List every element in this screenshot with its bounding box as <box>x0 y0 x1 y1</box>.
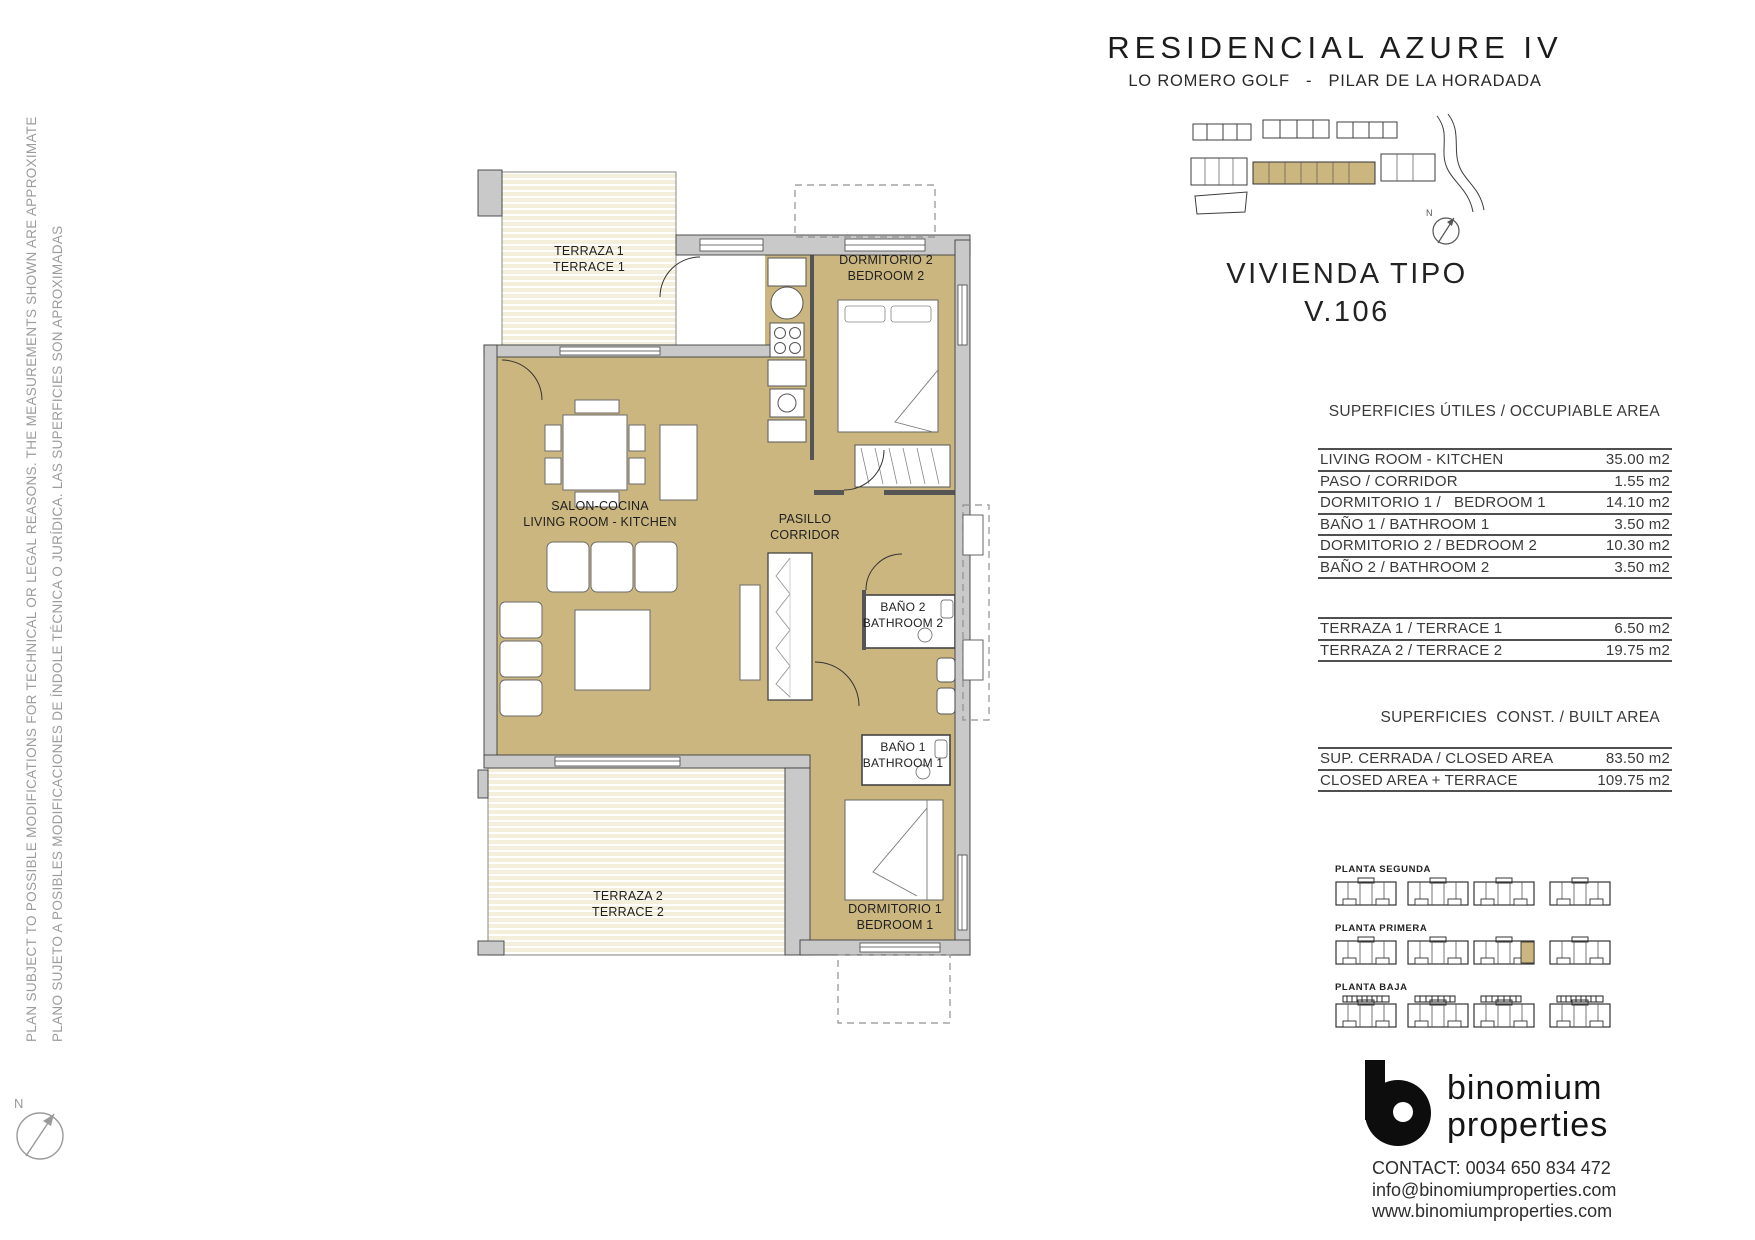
contact-email[interactable]: info@binomiumproperties.com <box>1372 1180 1616 1202</box>
floor-diagram-primera <box>1335 936 1615 970</box>
project-subtitle: LO ROMERO GOLF - PILAR DE LA HORADADA <box>1107 72 1562 91</box>
pasillo-en: CORRIDOR <box>745 528 865 544</box>
site-compass-icon: N <box>1424 206 1466 250</box>
built-area-table: SUP. CERRADA / CLOSED AREA83.50 m2 CLOSE… <box>1318 747 1672 792</box>
bano2-en: BATHROOM 2 <box>835 616 971 632</box>
table-row: BAÑO 1 / BATHROOM 13.50 m2 <box>1318 515 1672 537</box>
dormitorio2-en: BEDROOM 2 <box>806 269 966 285</box>
room-label-bano1: BAÑO 1 BATHROOM 1 <box>835 740 971 771</box>
row-label: PASO / CORRIDOR <box>1320 473 1458 490</box>
terraza1-es: TERRAZA 1 <box>509 244 669 260</box>
contact-website[interactable]: www.binomiumproperties.com <box>1372 1201 1616 1223</box>
table-row: PASO / CORRIDOR1.55 m2 <box>1318 472 1672 494</box>
brand-name: binomium properties <box>1447 1070 1608 1144</box>
built-area-header: SUPERFICIES CONST. / BUILT AREA <box>1240 709 1660 727</box>
compass-n-label: N <box>14 1096 23 1111</box>
pasillo-es: PASILLO <box>745 512 865 528</box>
row-value: 10.30 m2 <box>1606 537 1670 554</box>
row-label: TERRAZA 2 / TERRACE 2 <box>1320 642 1502 659</box>
brand-name-line1: binomium <box>1447 1070 1608 1107</box>
table-row: DORMITORIO 1 / BEDROOM 114.10 m2 <box>1318 493 1672 515</box>
room-label-terraza1: TERRAZA 1 TERRACE 1 <box>509 244 669 275</box>
occupiable-area-table: LIVING ROOM - KITCHEN35.00 m2 PASO / COR… <box>1318 448 1672 579</box>
site-plan-drawing <box>1185 112 1485 220</box>
row-label: LIVING ROOM - KITCHEN <box>1320 451 1503 468</box>
room-label-dormitorio2: DORMITORIO 2 BEDROOM 2 <box>806 253 966 284</box>
floor-diagram-segunda <box>1335 877 1615 911</box>
room-label-terraza2: TERRAZA 2 TERRACE 2 <box>548 889 708 920</box>
row-value: 3.50 m2 <box>1614 516 1670 533</box>
row-value: 83.50 m2 <box>1606 750 1670 767</box>
project-title-block: RESIDENCIAL AZURE IV LO ROMERO GOLF - PI… <box>1107 30 1562 91</box>
row-value: 3.50 m2 <box>1614 559 1670 576</box>
contact-block: CONTACT: 0034 650 834 472 info@binomiump… <box>1372 1158 1616 1223</box>
disclaimer-spanish: PLANO SUJETO A POSIBLES MODIFICACIONES D… <box>50 226 65 1042</box>
floor-label-baja: PLANTA BAJA <box>1335 982 1625 993</box>
terraza1-en: TERRACE 1 <box>509 260 669 276</box>
row-label: DORMITORIO 1 / BEDROOM 1 <box>1320 494 1546 511</box>
room-label-pasillo: PASILLO CORRIDOR <box>745 512 865 543</box>
unit-number: V.106 <box>1226 293 1467 331</box>
binomium-b-icon <box>1365 1060 1435 1146</box>
bano1-en: BATHROOM 1 <box>835 756 971 772</box>
brand-logo: binomium properties <box>1365 1060 1608 1146</box>
bano2-es: BAÑO 2 <box>835 600 971 616</box>
dormitorio2-es: DORMITORIO 2 <box>806 253 966 269</box>
row-label: BAÑO 1 / BATHROOM 1 <box>1320 516 1489 533</box>
row-value: 6.50 m2 <box>1614 620 1670 637</box>
terraza2-es: TERRAZA 2 <box>548 889 708 905</box>
row-label: BAÑO 2 / BATHROOM 2 <box>1320 559 1489 576</box>
highlighted-unit <box>1521 942 1534 963</box>
row-label: DORMITORIO 2 / BEDROOM 2 <box>1320 537 1537 554</box>
unit-title-block: VIVIENDA TIPO V.106 <box>1226 255 1467 331</box>
table-row: TERRAZA 1 / TERRACE 16.50 m2 <box>1318 619 1672 641</box>
floor-label-primera: PLANTA PRIMERA <box>1335 923 1625 934</box>
project-title: RESIDENCIAL AZURE IV <box>1107 30 1562 66</box>
row-label: CLOSED AREA + TERRACE <box>1320 772 1518 789</box>
table-row: TERRAZA 2 / TERRACE 219.75 m2 <box>1318 641 1672 663</box>
unit-type-label: VIVIENDA TIPO <box>1226 255 1467 293</box>
floor-label-segunda: PLANTA SEGUNDA <box>1335 864 1625 875</box>
table-row: BAÑO 2 / BATHROOM 23.50 m2 <box>1318 558 1672 580</box>
occupiable-area-header: SUPERFICIES ÚTILES / OCCUPIABLE AREA <box>1240 403 1660 421</box>
table-row: DORMITORIO 2 / BEDROOM 210.30 m2 <box>1318 536 1672 558</box>
table-row: CLOSED AREA + TERRACE109.75 m2 <box>1318 771 1672 793</box>
room-label-bano2: BAÑO 2 BATHROOM 2 <box>835 600 971 631</box>
contact-phone: CONTACT: 0034 650 834 472 <box>1372 1158 1616 1180</box>
table-row: LIVING ROOM - KITCHEN35.00 m2 <box>1318 450 1672 472</box>
table-row: SUP. CERRADA / CLOSED AREA83.50 m2 <box>1318 749 1672 771</box>
site-compass-n-label: N <box>1426 208 1433 218</box>
row-value: 35.00 m2 <box>1606 451 1670 468</box>
row-label: TERRAZA 1 / TERRACE 1 <box>1320 620 1502 637</box>
brand-name-line2: properties <box>1447 1107 1608 1144</box>
north-compass-icon: N <box>10 1094 72 1170</box>
row-value: 19.75 m2 <box>1606 642 1670 659</box>
salon-es: SALON-COCINA <box>500 499 700 515</box>
salon-en: LIVING ROOM - KITCHEN <box>500 515 700 531</box>
floor-selector-diagrams: PLANTA SEGUNDA PLANTA PRIMERA PLANTA BAJ… <box>1335 864 1625 1045</box>
terraza2-en: TERRACE 2 <box>548 905 708 921</box>
dormitorio1-en: BEDROOM 1 <box>815 918 975 934</box>
row-value: 109.75 m2 <box>1597 772 1670 789</box>
floor-row-baja: PLANTA BAJA <box>1335 982 1625 1038</box>
floor-plan: TERRAZA 1 TERRACE 1 DORMITORIO 2 BEDROOM… <box>455 160 1000 1040</box>
row-value: 14.10 m2 <box>1606 494 1670 511</box>
bano1-es: BAÑO 1 <box>835 740 971 756</box>
row-label: SUP. CERRADA / CLOSED AREA <box>1320 750 1553 767</box>
floor-row-segunda: PLANTA SEGUNDA <box>1335 864 1625 916</box>
room-label-dormitorio1: DORMITORIO 1 BEDROOM 1 <box>815 902 975 933</box>
floor-diagram-baja <box>1335 995 1615 1033</box>
terrace-area-table: TERRAZA 1 / TERRACE 16.50 m2 TERRAZA 2 /… <box>1318 617 1672 662</box>
floor-row-primera: PLANTA PRIMERA <box>1335 923 1625 975</box>
room-label-salon: SALON-COCINA LIVING ROOM - KITCHEN <box>500 499 700 530</box>
disclaimer-english: PLAN SUBJECT TO POSSIBLE MODIFICATIONS F… <box>24 116 39 1042</box>
dormitorio1-es: DORMITORIO 1 <box>815 902 975 918</box>
row-value: 1.55 m2 <box>1614 473 1670 490</box>
